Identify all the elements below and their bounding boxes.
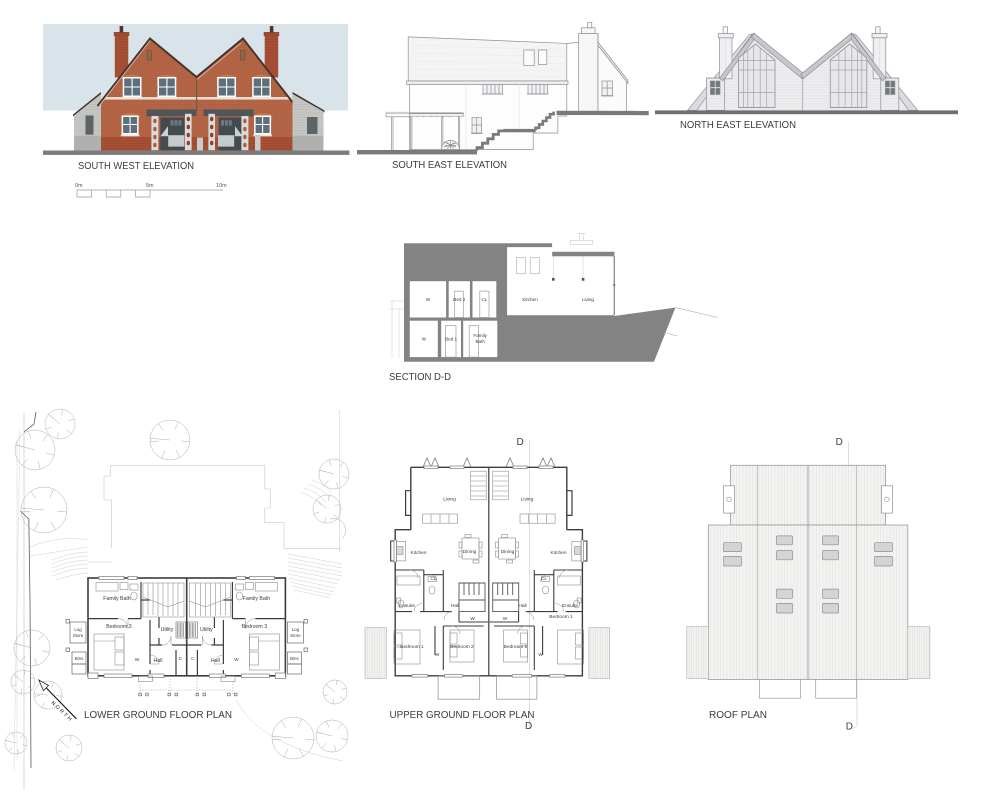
svg-text:Family: Family	[473, 333, 487, 338]
svg-text:Bedroom 1: Bedroom 1	[549, 614, 573, 620]
svg-text:W: W	[422, 337, 427, 342]
svg-text:ROOF PLAN: ROOF PLAN	[709, 710, 767, 721]
svg-text:LOWER GROUND FLOOR PLAN: LOWER GROUND FLOOR PLAN	[84, 710, 232, 721]
svg-text:Utility: Utility	[161, 627, 174, 633]
svg-text:5m: 5m	[146, 183, 154, 189]
svg-text:Kitchen: Kitchen	[411, 550, 427, 556]
svg-text:D: D	[517, 437, 524, 448]
svg-text:SOUTH EAST ELEVATION: SOUTH EAST ELEVATION	[392, 160, 507, 171]
svg-text:C: C	[179, 656, 183, 662]
svg-text:Hall: Hall	[451, 603, 459, 609]
svg-text:Living: Living	[521, 497, 534, 503]
svg-text:0m: 0m	[75, 183, 83, 189]
svg-text:Bedroom 1: Bedroom 1	[400, 644, 424, 650]
svg-text:Ensuite: Ensuite	[399, 603, 415, 609]
svg-text:Kitchen: Kitchen	[551, 550, 567, 556]
svg-text:W: W	[470, 616, 475, 622]
svg-text:Bedroom 3: Bedroom 3	[242, 624, 267, 630]
svg-text:Bedroom 3: Bedroom 3	[106, 624, 131, 630]
svg-text:Bed 1: Bed 1	[445, 337, 457, 342]
svg-text:Bins: Bins	[290, 656, 299, 661]
svg-text:Store: Store	[290, 633, 301, 638]
svg-text:C: C	[191, 656, 195, 662]
svg-text:D: D	[836, 437, 843, 448]
svg-text:10m: 10m	[216, 183, 227, 189]
svg-text:Bath: Bath	[475, 339, 485, 344]
svg-text:Log: Log	[74, 627, 82, 632]
svg-text:D: D	[846, 721, 853, 732]
svg-text:UPPER GROUND FLOOR PLAN: UPPER GROUND FLOOR PLAN	[390, 710, 535, 721]
svg-text:Family Bath: Family Bath	[243, 596, 271, 602]
svg-text:Store: Store	[73, 633, 84, 638]
svg-text:CL: CL	[541, 576, 547, 582]
svg-text:SECTION D-D: SECTION D-D	[389, 372, 451, 383]
svg-text:Bins: Bins	[75, 656, 84, 661]
svg-text:Living: Living	[443, 497, 456, 503]
svg-text:D: D	[525, 721, 532, 732]
svg-text:W: W	[503, 616, 508, 622]
svg-text:CL: CL	[481, 297, 487, 302]
svg-text:Living: Living	[582, 297, 594, 302]
svg-text:Bed 2: Bed 2	[453, 297, 465, 302]
svg-text:Bedroom 2: Bedroom 2	[504, 644, 528, 650]
svg-text:W: W	[426, 297, 431, 302]
svg-text:Ensuite: Ensuite	[562, 603, 578, 609]
svg-text:W: W	[135, 657, 140, 663]
svg-text:Hall: Hall	[211, 658, 220, 664]
svg-text:Dining: Dining	[501, 549, 515, 555]
svg-text:Hall: Hall	[154, 658, 163, 664]
svg-text:CL: CL	[430, 576, 436, 582]
svg-text:W: W	[234, 657, 239, 663]
svg-text:Hall: Hall	[518, 603, 526, 609]
svg-text:Family Bath: Family Bath	[103, 596, 131, 602]
svg-text:Log: Log	[292, 627, 300, 632]
svg-text:W: W	[435, 652, 440, 658]
svg-text:W: W	[538, 652, 543, 658]
svg-text:Bedroom 2: Bedroom 2	[450, 644, 474, 650]
svg-text:SOUTH WEST ELEVATION: SOUTH WEST ELEVATION	[78, 161, 194, 172]
svg-text:Dining: Dining	[463, 549, 477, 555]
svg-text:NORTH EAST ELEVATION: NORTH EAST ELEVATION	[680, 120, 796, 131]
svg-text:Kitchen: Kitchen	[522, 297, 538, 302]
svg-text:Utility: Utility	[200, 627, 213, 633]
